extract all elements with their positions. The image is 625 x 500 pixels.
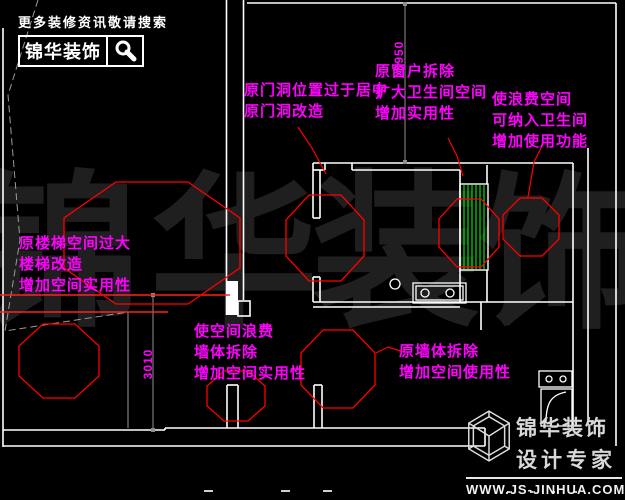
- annotation-line: 增加使用功能: [492, 131, 588, 152]
- annotation-line: 楼梯改造: [19, 254, 131, 275]
- annotation-wall-demolish-center: 使空间浪费 墙体拆除 增加空间实用性: [194, 321, 306, 384]
- annotation-line: 原门洞改造: [244, 101, 388, 122]
- footer-tagline: 设计专家: [516, 444, 616, 474]
- annotation-line: 墙体拆除: [194, 342, 306, 363]
- revision-cloud: [286, 195, 364, 281]
- annotation-stairs: 原楼梯空间过大 楼梯改造 增加空间实用性: [19, 233, 131, 296]
- footer-brand-name: 锦华装饰: [516, 412, 616, 442]
- dimension-label-vertical-left: 3010: [141, 344, 155, 384]
- cad-floorplan-image: 锦 华 装 饰: [0, 0, 625, 500]
- dimension-label-vertical-top: 3950: [392, 36, 406, 76]
- annotation-line: 原门洞位置过于居中: [244, 80, 388, 101]
- annotation-wall-demolish-right: 原墙体拆除 增加空间使用性: [399, 341, 511, 383]
- search-icon: [108, 37, 142, 65]
- annotation-line: 使浪费空间: [492, 89, 588, 110]
- revision-cloud: [301, 330, 375, 408]
- brand-search-box: 锦华装饰: [18, 35, 144, 67]
- brand-name: 锦华装饰: [20, 37, 106, 65]
- footer-divider: [466, 477, 622, 479]
- annotation-line: 原楼梯空间过大: [19, 233, 131, 254]
- revision-cloud: [503, 198, 559, 256]
- annotation-line: 增加空间实用性: [19, 275, 131, 296]
- hatch-wall-section: [460, 184, 488, 270]
- annotation-line: 增加空间实用性: [194, 363, 306, 384]
- cube-logo-icon: [466, 408, 512, 464]
- revision-cloud: [19, 324, 99, 398]
- annotation-door: 原门洞位置过于居中 原门洞改造: [244, 80, 388, 122]
- annotation-line: 扩大卫生间空间: [375, 82, 487, 103]
- annotation-line: 使空间浪费: [194, 321, 306, 342]
- sink-unit: [539, 371, 572, 387]
- footer-website: WWW.JS-JINHUA.COM: [466, 482, 622, 497]
- annotation-waste-space: 使浪费空间 可纳入卫生间 增加使用功能: [492, 89, 588, 152]
- annotation-line: 原墙体拆除: [399, 341, 511, 362]
- annotation-line: 可纳入卫生间: [492, 110, 588, 131]
- annotation-line: 增加空间使用性: [399, 362, 511, 383]
- floor-drain: [390, 279, 400, 289]
- banner-slogan: 更多装修资讯敬请搜索: [18, 12, 168, 31]
- leader-lines: [298, 127, 544, 353]
- annotation-line: 增加实用性: [375, 103, 487, 124]
- revision-cloud: [439, 199, 499, 267]
- search-banner: 更多装修资讯敬请搜索 锦华装饰: [18, 12, 168, 67]
- footer-logo: 锦华装饰 设计专家 WWW.JS-JINHUA.COM: [466, 408, 622, 497]
